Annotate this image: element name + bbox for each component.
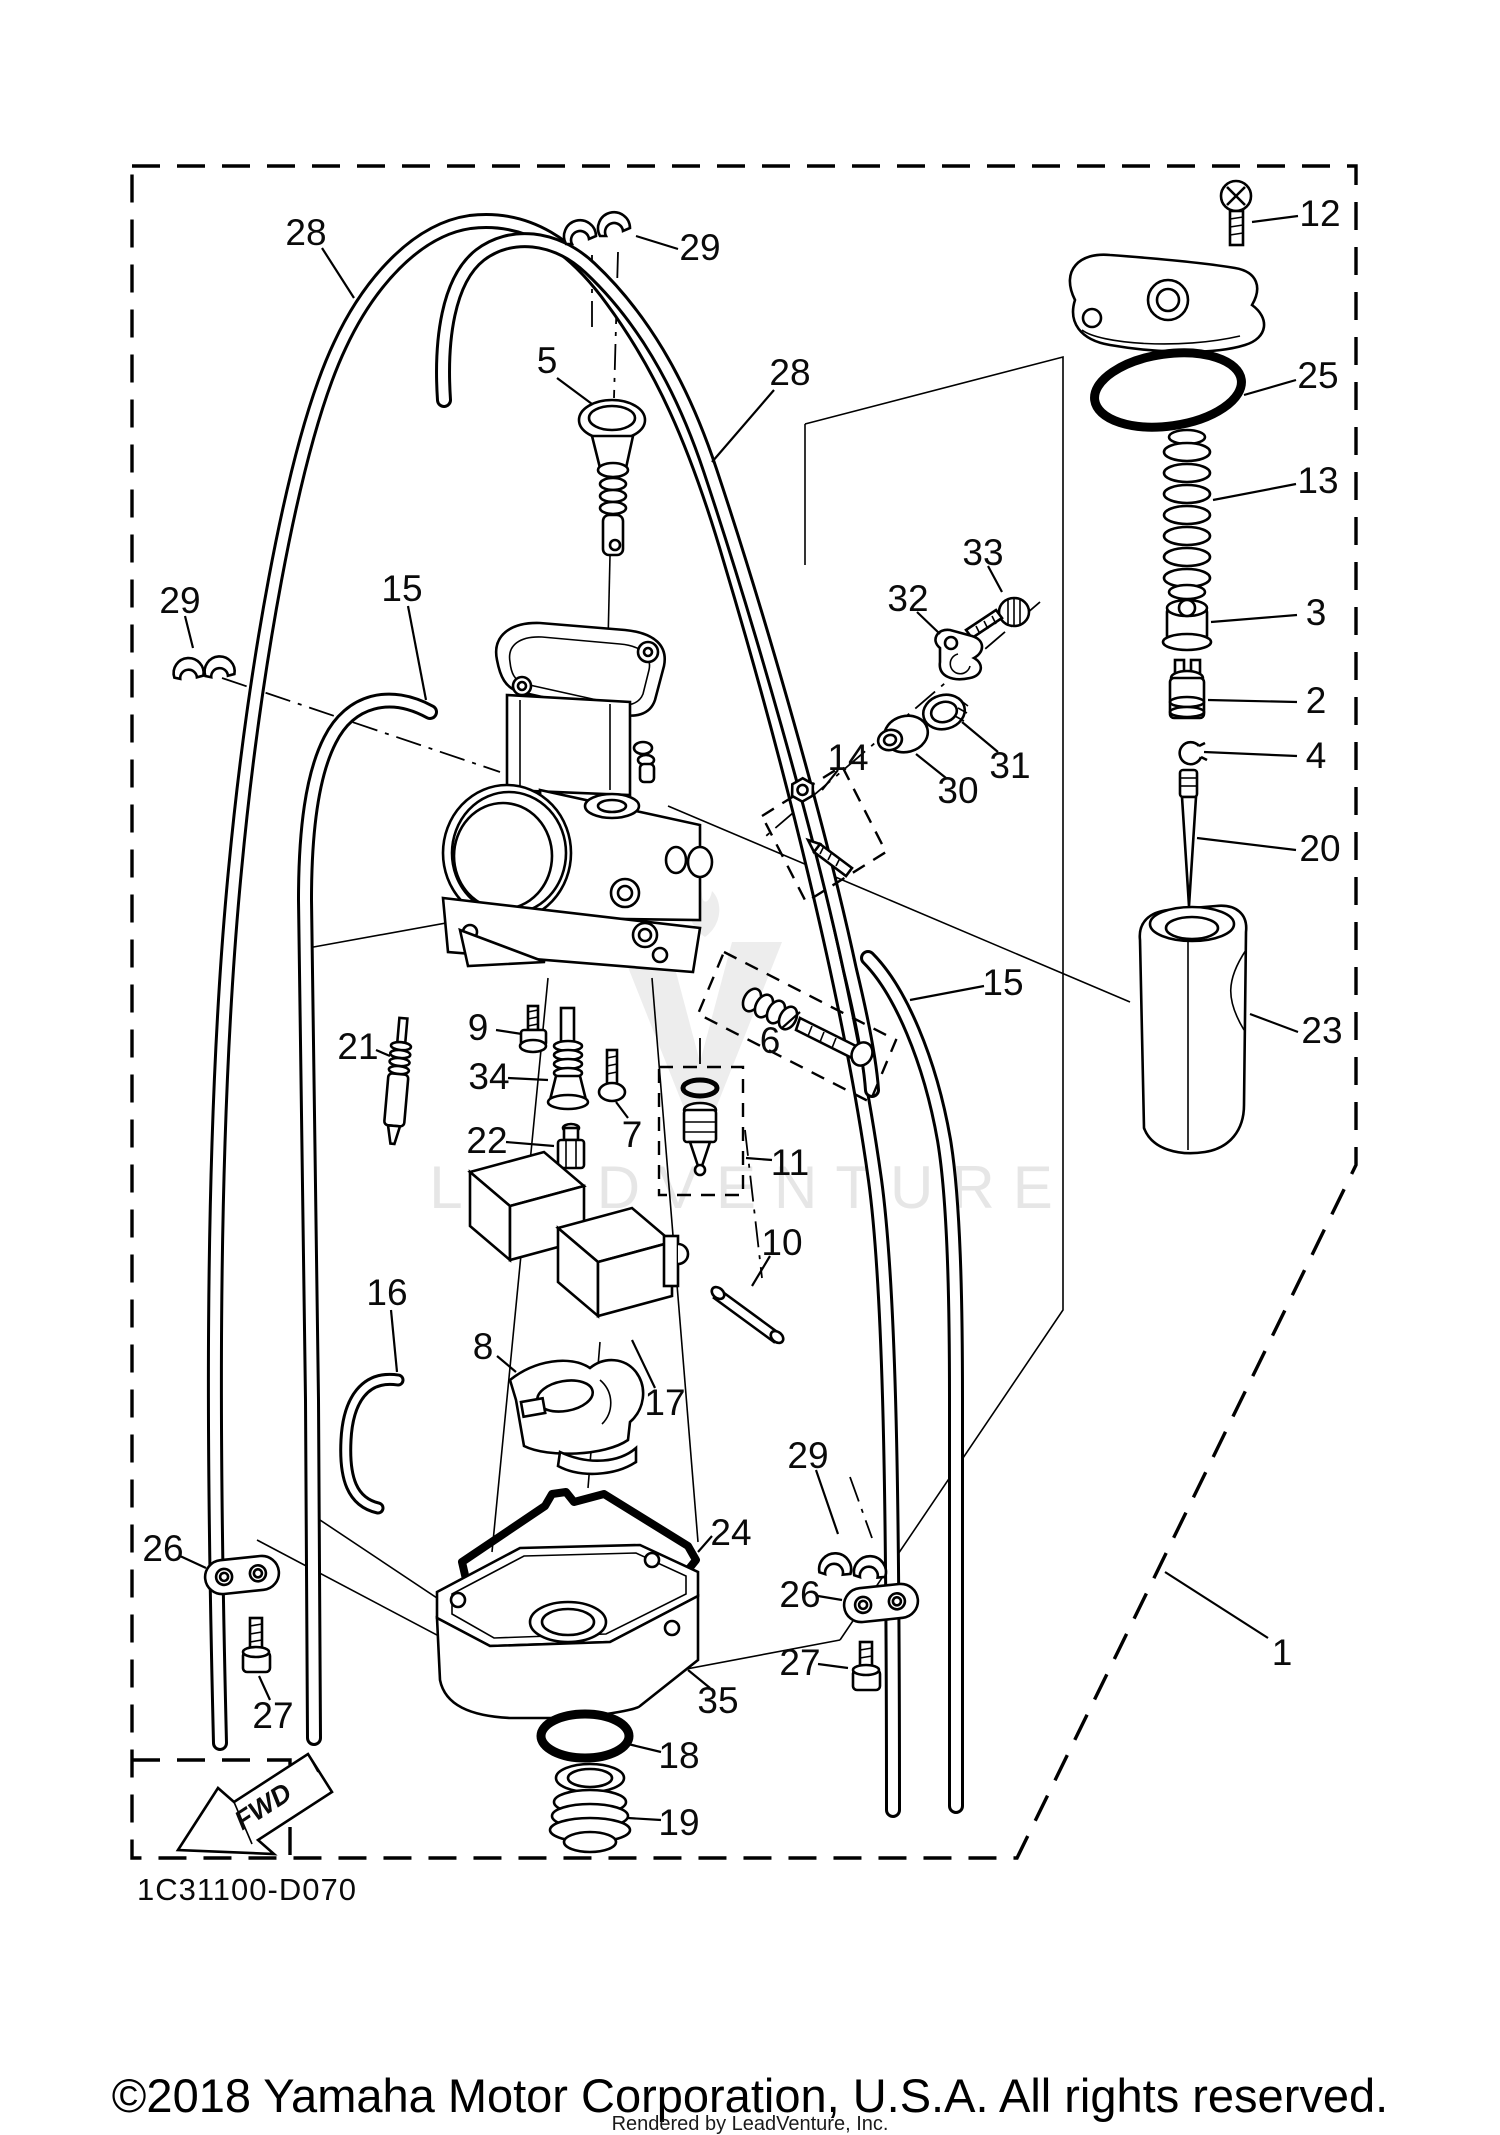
part-8-float-bracket xyxy=(510,1360,643,1474)
part-26-cable-holder-right xyxy=(842,1582,919,1624)
part-10-float-pin xyxy=(709,1285,785,1346)
part-7-float-screw xyxy=(599,1050,625,1101)
callout-label-5: 5 xyxy=(537,340,558,381)
callout-label-19: 19 xyxy=(658,1802,699,1843)
callout-label-9: 9 xyxy=(468,1007,489,1048)
rendered-by-text: Rendered by LeadVenture, Inc. xyxy=(612,2113,889,2135)
callout-leader-29 xyxy=(636,236,678,249)
part-4-needle-clip xyxy=(1180,742,1207,764)
callout-label-17: 17 xyxy=(644,1382,685,1423)
callout-leader-4 xyxy=(1204,752,1297,756)
callout-label-35: 35 xyxy=(697,1680,738,1721)
callout-leader-1 xyxy=(1165,1572,1268,1638)
callout-label-2: 2 xyxy=(1306,680,1327,721)
part-2-needle-holder xyxy=(1170,660,1204,718)
part-34-main-nozzle xyxy=(548,1008,588,1109)
callout-label-13: 13 xyxy=(1297,460,1338,501)
part-12-cover-screw xyxy=(1221,181,1251,245)
part-3-spring-seat xyxy=(1163,600,1211,650)
callout-label-27: 27 xyxy=(252,1695,293,1736)
callout-label-29: 29 xyxy=(679,227,720,268)
callout-leader-5 xyxy=(557,378,592,404)
part-33-starter-screw xyxy=(966,598,1029,638)
callout-label-18: 18 xyxy=(658,1735,699,1776)
callout-leader-19 xyxy=(628,1818,661,1820)
part-9-drain-screw xyxy=(520,1006,546,1052)
callout-label-26: 26 xyxy=(779,1574,820,1615)
callout-label-14: 14 xyxy=(827,737,868,778)
callout-label-15: 15 xyxy=(381,568,422,609)
part-29-hose-clamp-bottom xyxy=(818,1541,891,1592)
callout-leader-34 xyxy=(508,1078,548,1080)
callout-label-30: 30 xyxy=(937,770,978,811)
part-26-cable-holder-left xyxy=(203,1554,280,1596)
callout-leader-22 xyxy=(506,1142,554,1146)
callout-label-29: 29 xyxy=(787,1435,828,1476)
part-throttle-cover xyxy=(1070,255,1264,352)
callout-label-7: 7 xyxy=(622,1114,643,1155)
callout-label-29: 29 xyxy=(159,580,200,621)
callout-label-8: 8 xyxy=(473,1326,494,1367)
part-15-overflow-hose-left xyxy=(305,701,430,1738)
part-35-float-bowl xyxy=(437,1545,698,1718)
callout-label-28: 28 xyxy=(769,352,810,393)
part-22-pilot-jet xyxy=(558,1124,584,1168)
callout-label-12: 12 xyxy=(1299,193,1340,234)
callout-label-16: 16 xyxy=(366,1272,407,1313)
callout-leader-16 xyxy=(391,1310,397,1372)
callout-leader-28 xyxy=(712,390,774,462)
callout-leader-28 xyxy=(322,248,354,298)
callout-label-31: 31 xyxy=(989,745,1030,786)
part-20-jet-needle xyxy=(1180,770,1197,906)
part-16-breather-hose xyxy=(346,1379,398,1508)
part-32-starter-lever xyxy=(935,630,982,679)
part-13-slide-spring xyxy=(1164,430,1210,599)
callout-label-27: 27 xyxy=(779,1642,820,1683)
part-19-drain-plug xyxy=(550,1764,630,1852)
callout-leader-18 xyxy=(628,1744,661,1752)
callout-label-34: 34 xyxy=(468,1056,509,1097)
callout-label-21: 21 xyxy=(337,1026,378,1067)
callout-label-11: 11 xyxy=(771,1142,809,1183)
callout-label-3: 3 xyxy=(1306,592,1327,633)
diagram-code: 1C31100-D070 xyxy=(137,1872,357,1907)
callout-label-24: 24 xyxy=(710,1512,751,1553)
part-23-throttle-slide xyxy=(1140,906,1246,1153)
callout-label-1: 1 xyxy=(1272,1632,1293,1673)
part-29-hose-clamp-top xyxy=(564,212,630,244)
callout-label-32: 32 xyxy=(887,578,928,619)
callout-leader-13 xyxy=(1213,484,1296,500)
callout-leader-2 xyxy=(1208,700,1297,702)
callout-label-26: 26 xyxy=(142,1528,183,1569)
part-27-holder-screw-right xyxy=(853,1642,880,1690)
diagram-canvas: LEADVENTURE xyxy=(0,0,1500,2135)
callout-leader-9 xyxy=(496,1030,522,1034)
callout-label-20: 20 xyxy=(1299,828,1340,869)
part-25-cover-gasket xyxy=(1090,344,1247,436)
callout-leader-29 xyxy=(816,1470,838,1534)
callout-leader-8 xyxy=(497,1356,516,1372)
part-21-pilot-air-screw xyxy=(382,1017,413,1144)
callout-label-22: 22 xyxy=(466,1120,507,1161)
part-5-throttle-plunger xyxy=(579,400,645,555)
callout-leader-26 xyxy=(180,1556,206,1568)
callout-label-23: 23 xyxy=(1301,1010,1342,1051)
callout-leader-12 xyxy=(1252,216,1298,222)
parts-diagram-page: LEADVENTURE xyxy=(0,0,1500,2135)
part-carburetor-body xyxy=(443,623,712,972)
callout-leader-15 xyxy=(910,986,984,1000)
callout-leader-27 xyxy=(818,1664,848,1668)
part-27-holder-screw-left xyxy=(243,1618,270,1672)
callout-leader-3 xyxy=(1211,615,1297,622)
callout-leader-26 xyxy=(818,1596,842,1600)
callout-label-25: 25 xyxy=(1297,355,1338,396)
part-18-drain-o-ring xyxy=(541,1714,629,1758)
callout-leader-25 xyxy=(1244,380,1296,395)
part-29-hose-clamp-left xyxy=(172,647,237,689)
callout-label-6: 6 xyxy=(760,1020,781,1061)
callout-label-10: 10 xyxy=(761,1222,802,1263)
callout-leader-20 xyxy=(1197,838,1296,850)
callout-leader-23 xyxy=(1250,1014,1298,1032)
callout-label-33: 33 xyxy=(962,532,1003,573)
callout-leader-15 xyxy=(408,606,426,700)
callout-label-15: 15 xyxy=(982,962,1023,1003)
callout-label-4: 4 xyxy=(1306,735,1327,776)
callout-label-28: 28 xyxy=(285,212,326,253)
